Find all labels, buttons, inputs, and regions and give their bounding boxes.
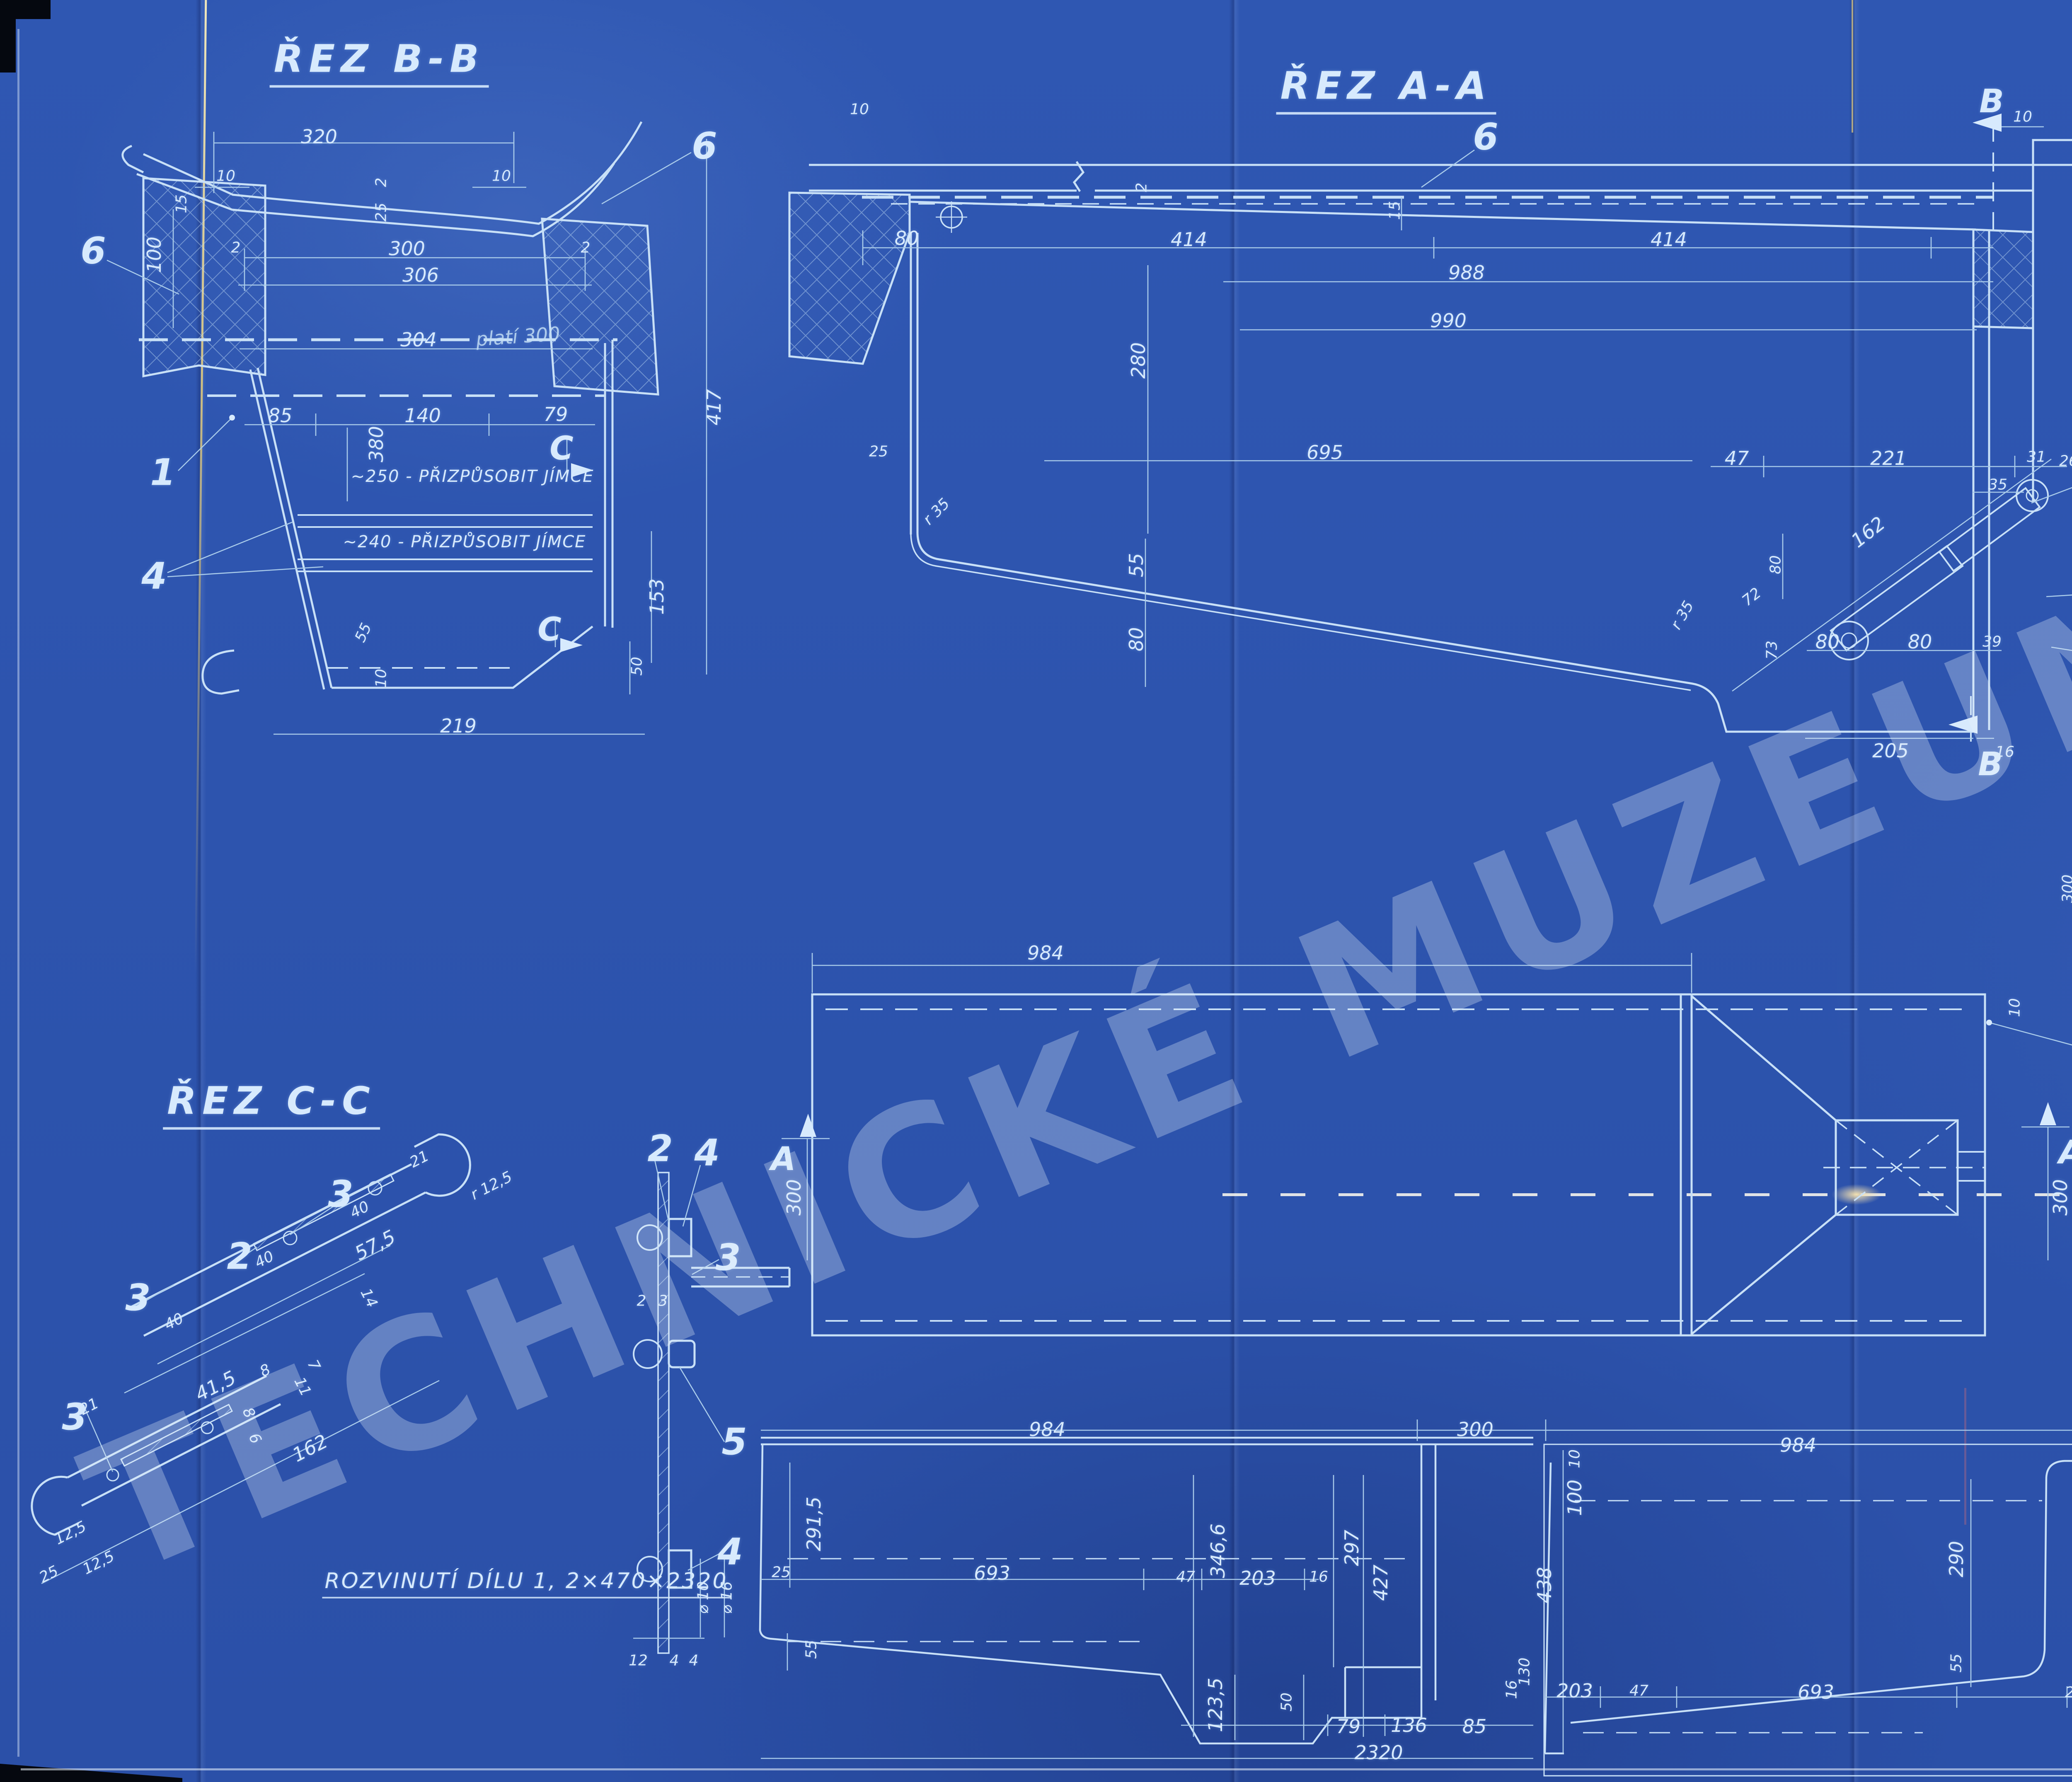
- part-callout: 6: [692, 125, 717, 167]
- dimension-label: 123,5: [1204, 1678, 1227, 1732]
- dimension-label: 100: [1564, 1480, 1586, 1516]
- dimension-label: 100: [143, 237, 165, 273]
- section-title: ŘEZ A-A: [1276, 64, 1496, 115]
- part-callout: 3: [715, 1236, 741, 1279]
- section-letter: A: [2059, 1134, 2072, 1171]
- dimension-label: 162: [1847, 512, 1889, 552]
- dimension-label: 85: [268, 404, 293, 427]
- dimension-label: 990: [1430, 309, 1467, 332]
- dimension-label: 306: [402, 264, 439, 286]
- dimension-label: 80: [1908, 631, 1932, 653]
- dimension-label: 25: [2065, 1684, 2072, 1701]
- dimension-label: 80: [1125, 627, 1147, 652]
- dimension-label: 55: [1948, 1654, 1965, 1673]
- dimension-label: 203: [1556, 1680, 1593, 1702]
- dimension-label: 10: [1566, 1449, 1583, 1468]
- dimension-label: 984: [1029, 1418, 1065, 1441]
- dimension-label: 693: [1798, 1681, 1834, 1703]
- dimension-label: 10: [2013, 109, 2032, 126]
- blueprint-sheet: ŘEZ B-B3201010661522510023002306304platí…: [0, 0, 2072, 1782]
- part-callout: 3: [125, 1277, 150, 1319]
- dimension-label: 10: [2007, 998, 2024, 1017]
- dimension-label: 8: [239, 1405, 259, 1421]
- dimension-label: 72: [1739, 585, 1764, 610]
- dimension-label: 47: [1176, 1569, 1195, 1586]
- dimension-label: 40: [162, 1310, 186, 1333]
- dimension-label: 300: [2060, 875, 2072, 903]
- dimension-label: 79: [1336, 1715, 1361, 1738]
- dimension-label: 26: [2059, 453, 2072, 470]
- dimension-label: 221: [1870, 447, 1907, 469]
- dimension-label: 4: [689, 1652, 699, 1669]
- dimension-label: 39: [1982, 633, 2002, 650]
- dimension-label: 300: [1457, 1418, 1493, 1441]
- dimension-label: 16: [1503, 1680, 1520, 1699]
- dimension-label: 8: [257, 1361, 273, 1381]
- dimension-label: 47: [1629, 1683, 1648, 1700]
- dimension-label: 2: [637, 1293, 646, 1310]
- part-callout: 5: [721, 1421, 747, 1463]
- dimension-label: 162: [289, 1430, 332, 1466]
- dimension-label: 300: [389, 237, 425, 260]
- dimension-label: 219: [440, 715, 477, 737]
- part-callout: 6: [1473, 116, 1498, 158]
- dimension-label: 12: [629, 1652, 648, 1669]
- dimension-label: 280: [1127, 342, 1150, 379]
- dimension-label: 984: [1780, 1434, 1816, 1456]
- dimension-label: r 35: [1668, 598, 1697, 633]
- dimension-label: 2320: [1354, 1741, 1403, 1764]
- dimension-label: r 35: [920, 495, 953, 528]
- dimension-label: 693: [974, 1562, 1010, 1584]
- dimension-label: 57,5: [351, 1226, 399, 1265]
- dimension-label: 414: [1651, 228, 1687, 251]
- dimension-label: 136: [1391, 1714, 1427, 1736]
- dimension-label: 205: [1872, 740, 1909, 762]
- dimension-label: 695: [1307, 441, 1343, 464]
- dimension-label: 140: [404, 404, 441, 427]
- development-title: ROZVINUTÍ DÍLU 1, 2×470×2320: [322, 1569, 730, 1598]
- dimension-label: 3: [658, 1293, 668, 1310]
- annotation-layer: ŘEZ B-B3201010661522510023002306304platí…: [0, 0, 2072, 1782]
- dimension-label: 320: [301, 126, 337, 148]
- dimension-label: 85: [1462, 1715, 1487, 1738]
- part-callout: 4: [717, 1531, 743, 1573]
- dimension-label: 50: [1278, 1693, 1295, 1712]
- part-callout: 2: [647, 1127, 673, 1170]
- dimension-label: 291,5: [803, 1497, 825, 1551]
- dimension-label: 10: [850, 101, 869, 118]
- dimension-label: 2: [373, 178, 390, 187]
- part-callout: 1: [150, 451, 175, 494]
- dimension-label: r 12,5: [468, 1168, 515, 1204]
- dimension-label: 438: [1533, 1567, 1556, 1603]
- dimension-label: 153: [646, 578, 668, 615]
- dimension-label: 79: [544, 403, 568, 426]
- dimension-label: 427: [1370, 1564, 1392, 1601]
- dimension-label: 73: [1764, 641, 1781, 660]
- dimension-label: 15: [173, 194, 190, 213]
- section-letter: B: [1979, 83, 2004, 120]
- dimension-label: 80: [1767, 555, 1784, 574]
- dimension-label: 7: [304, 1357, 324, 1373]
- fit-note: ~240 - PŘIZPŮSOBIT JÍMCE: [343, 532, 586, 551]
- dimension-label: 14: [357, 1286, 380, 1310]
- dimension-label: 10: [492, 168, 511, 185]
- dimension-label: 21: [407, 1147, 431, 1171]
- section-letter: C: [549, 430, 573, 467]
- dimension-label: 2: [1133, 183, 1150, 192]
- dimension-label: 380: [365, 426, 387, 462]
- dimension-label: 15: [1387, 201, 1404, 220]
- dimension-label: 10: [216, 168, 235, 185]
- section-title: ŘEZ B-B: [270, 37, 489, 88]
- dimension-label: 297: [1341, 1530, 1363, 1566]
- dimension-label: 35: [1988, 476, 2007, 493]
- dimension-label: 25: [373, 203, 390, 222]
- dimension-label: 6: [245, 1430, 265, 1446]
- dimension-label: 55: [1125, 553, 1147, 578]
- dimension-label: 2: [581, 239, 591, 256]
- dimension-label: 31: [2027, 449, 2046, 466]
- section-letter: C: [537, 611, 561, 648]
- dimension-label: 300: [2049, 1179, 2072, 1216]
- dimension-label: 25: [772, 1564, 791, 1581]
- dimension-label: 41,5: [191, 1366, 240, 1406]
- dimension-label: 988: [1448, 261, 1485, 284]
- dimension-label: 290: [1945, 1541, 1968, 1577]
- dimension-label: 12,5: [80, 1548, 117, 1578]
- handwritten-note: platí 300: [475, 322, 561, 351]
- dimension-label: 12,5: [52, 1518, 89, 1548]
- section-letter: B: [1978, 746, 2002, 783]
- dimension-label: 55: [352, 621, 375, 645]
- dimension-label: 414: [1171, 228, 1207, 251]
- dimension-label: 80: [895, 227, 919, 249]
- dimension-label: 2: [231, 239, 241, 256]
- dimension-label: 4: [670, 1652, 679, 1669]
- section-title: ŘEZ C-C: [163, 1079, 380, 1130]
- dimension-label: 55: [803, 1640, 820, 1659]
- part-callout: 6: [80, 230, 106, 272]
- dimension-label: 25: [36, 1562, 61, 1586]
- dimension-label: 25: [869, 443, 888, 460]
- dimension-label: 16: [1309, 1569, 1328, 1586]
- part-callout: 4: [141, 555, 167, 597]
- dimension-label: 50: [629, 657, 646, 676]
- dimension-label: 47: [1725, 447, 1749, 469]
- dimension-label: 40: [252, 1248, 276, 1271]
- dimension-label: 10: [373, 669, 390, 688]
- part-callout: 4: [694, 1132, 719, 1174]
- section-letter: A: [771, 1141, 796, 1178]
- dimension-label: 203: [1239, 1567, 1276, 1589]
- dimension-label: 346,6: [1207, 1523, 1229, 1578]
- dimension-label: 11: [290, 1374, 314, 1399]
- dimension-label: 417: [703, 389, 725, 426]
- dimension-label: 984: [1027, 942, 1064, 964]
- part-callout: 2: [227, 1235, 252, 1278]
- dimension-label: 300: [783, 1179, 805, 1216]
- dimension-label: 80: [1815, 631, 1840, 653]
- dimension-label: 304: [400, 329, 437, 351]
- fit-note: ~250 - PŘIZPŮSOBIT JÍMCE: [351, 467, 594, 486]
